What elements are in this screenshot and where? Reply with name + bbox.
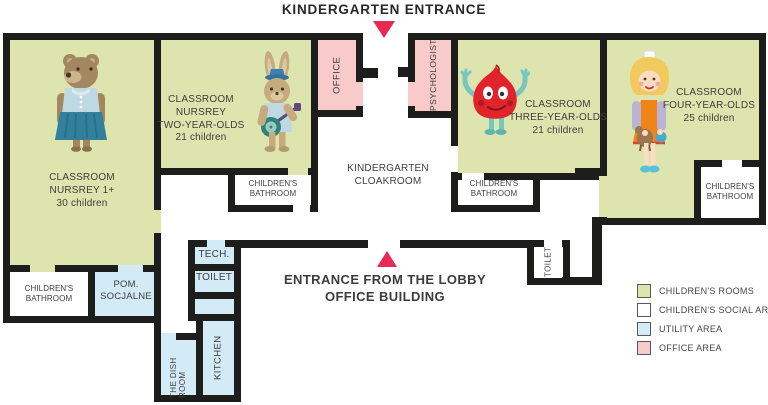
legend-item-office-area: OFFICE AREA — [637, 341, 768, 354]
bear-illustration — [50, 46, 112, 152]
label-bathroom-b: CHILDREN'S BATHROOM — [9, 284, 89, 304]
door-opening — [118, 265, 143, 272]
legend-item-childrens-rooms: CHILDREN'S ROOMS — [637, 284, 768, 297]
door-opening — [451, 146, 458, 172]
wall-segment — [238, 240, 368, 248]
legend-item-utility-area: UTILITY AREA — [637, 322, 768, 335]
wall-stub-psychologist — [398, 67, 415, 77]
wall-segment — [592, 217, 602, 285]
label-nursery2: CLASSROOM NURSREY TWO-YEAR-OLDS 21 child… — [147, 94, 255, 145]
label-psychologist: PSYCHOLOGIST — [415, 40, 451, 111]
label-nursery1: CLASSROOM NURSREY 1+ 30 children — [22, 172, 142, 210]
door-opening — [30, 265, 55, 272]
label-bathroom-a: CHILDREN'S BATHROOM — [233, 179, 313, 199]
door-opening — [293, 205, 310, 212]
kindergarten-entrance-title: KINDERGARTEN ENTRANCE — [0, 2, 768, 17]
label-office: OFFICE — [318, 40, 356, 110]
door-opening — [207, 240, 225, 247]
door-opening — [599, 176, 608, 217]
legend-item-social-area: CHILDREN'S SOCIAL AREA — [637, 303, 768, 316]
label-kitchen: KITCHEN — [202, 319, 234, 396]
legend: CHILDREN'S ROOMS CHILDREN'S SOCIAL AREA … — [637, 284, 768, 360]
wall-segment — [154, 316, 161, 336]
label-three-year-olds: CLASSROOM THREE-YEAR-OLDS 21 children — [498, 99, 618, 137]
door-opening — [154, 210, 161, 233]
label-toilet-left: TOILET — [190, 272, 238, 285]
label-pom-socjalne: POM. SOCJALNE — [92, 279, 160, 303]
label-bathroom-d: CHILDREN'S BATHROOM — [696, 182, 764, 202]
wall-stub-room4 — [575, 168, 607, 176]
wall-stub-office — [356, 68, 378, 78]
legend-swatch-blue — [637, 322, 651, 336]
legend-swatch-white — [637, 303, 651, 317]
wall-segment — [562, 277, 602, 285]
label-dish-room: THE DISH ROOM — [160, 336, 196, 398]
lobby-entrance-title: ENTRANCE FROM THE LOBBY OFFICE BUILDING — [254, 271, 516, 305]
door-opening — [722, 160, 742, 167]
door-opening — [408, 82, 415, 106]
door-opening — [356, 82, 363, 106]
door-opening — [288, 168, 308, 175]
label-bathroom-c: CHILDREN'S BATHROOM — [453, 179, 535, 199]
entrance-arrow-up-icon — [377, 251, 397, 267]
label-cloakroom: KINDERGARTEN CLOAKROOM — [328, 163, 448, 189]
rabbit-with-banjo-illustration — [246, 50, 308, 158]
wall-segment — [400, 240, 534, 248]
floor-plan: KINDERGARTEN ENTRANCE — [0, 0, 768, 405]
label-tech: TECH. — [190, 249, 238, 262]
label-toilet-right: TOILET — [533, 245, 563, 279]
label-four-year-olds: CLASSROOM FOUR-YEAR-OLDS 25 children — [648, 87, 768, 125]
legend-swatch-green — [637, 284, 651, 298]
legend-swatch-pink — [637, 341, 651, 355]
entrance-arrow-down-icon — [373, 21, 395, 38]
